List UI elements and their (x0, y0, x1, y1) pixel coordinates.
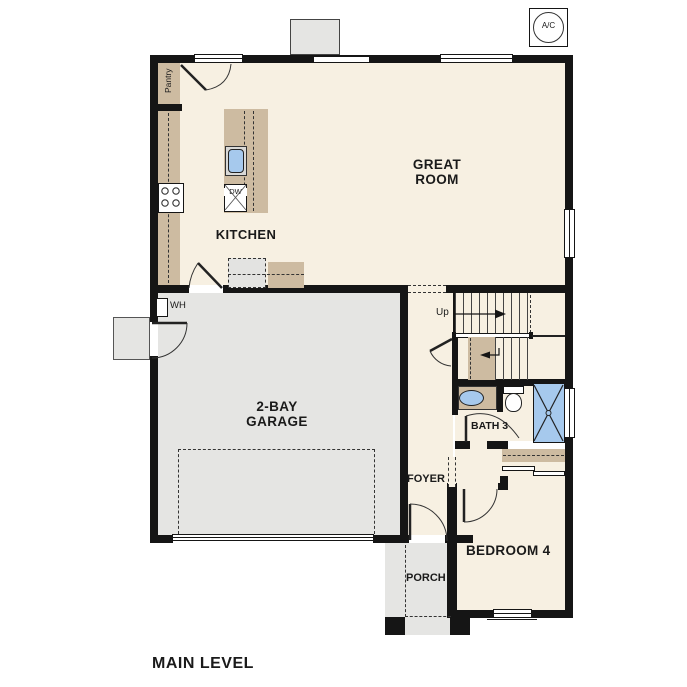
wall-porch-stub-left (385, 617, 405, 635)
window-kitchen-top (194, 54, 243, 63)
bath-sink (459, 390, 484, 406)
wall-bottom-garage-r (373, 535, 409, 543)
water-heater (156, 298, 168, 317)
garage-bay-outline (178, 449, 375, 534)
wall-bedroom-top-stub (498, 483, 508, 490)
garage-door (172, 534, 374, 541)
wall-mid-a (150, 285, 189, 293)
window-greatroom-top (440, 54, 513, 63)
stairs-upper-run (455, 293, 530, 333)
wall-bottom-garage-l (150, 535, 173, 543)
wall-garage-right (400, 293, 408, 543)
plan-title: MAIN LEVEL (152, 655, 254, 673)
cabinet-south-dash (228, 274, 304, 275)
great-room-kitchen-floor (158, 63, 565, 285)
opening-foyer-hall (448, 457, 456, 487)
window-greatroom-right (564, 209, 575, 258)
kitchen-cabinet-south (268, 262, 304, 288)
island-dash-2 (253, 111, 254, 211)
room-label-foyer: FOYER (407, 473, 445, 485)
closet-shelf-dash (503, 455, 564, 456)
room-label-garage: 2-BAY GARAGE (232, 399, 322, 429)
side-stoop (113, 317, 150, 360)
wall-right (565, 55, 573, 618)
window-bath-right (564, 388, 575, 438)
stairs-lower-run (495, 337, 530, 380)
wall-bath-bottom-a (455, 441, 470, 449)
room-label-porch: PORCH (406, 572, 446, 584)
island-sink (228, 149, 244, 173)
opening-greatroom-hall (408, 285, 446, 293)
wall-porch-stub-right (450, 618, 470, 635)
closet-slider-1 (502, 466, 535, 471)
stairs-rail-cap-l (452, 332, 456, 339)
stove (158, 183, 184, 213)
fridge-space (228, 258, 266, 288)
wall-bath-bottom-b (487, 441, 508, 449)
water-heater-label: WH (170, 301, 186, 312)
window-bedroom-sill (487, 617, 537, 620)
wall-left-upper (150, 55, 158, 322)
pantry-label: Pantry (164, 57, 174, 105)
room-label-great-room: GREAT ROOM (397, 157, 477, 187)
ac-unit-label: A/C (533, 22, 564, 31)
wall-left-lower (150, 356, 158, 543)
media-niche (313, 56, 370, 63)
wall-mid-c (446, 285, 565, 293)
porch-slab-lower (405, 617, 450, 635)
wall-pantry-stub (158, 104, 182, 111)
stairs-up-label: Up (436, 307, 449, 318)
understair-closet (468, 337, 495, 380)
floor-plan: WH Pantry DW Up A/C (0, 0, 687, 687)
shower (533, 383, 565, 443)
fireplace-bumpout (290, 19, 340, 55)
stairs-break-dash (530, 295, 531, 333)
dishwasher-label: DW (224, 188, 247, 196)
room-label-bedroom: BEDROOM 4 (466, 543, 550, 558)
understair-dash (470, 338, 471, 379)
stairs-landing-line (532, 335, 565, 337)
room-label-bath: BATH 3 (471, 421, 508, 433)
toilet-bowl (505, 393, 522, 412)
room-label-kitchen: KITCHEN (206, 228, 286, 243)
closet-slider-2 (533, 471, 565, 476)
